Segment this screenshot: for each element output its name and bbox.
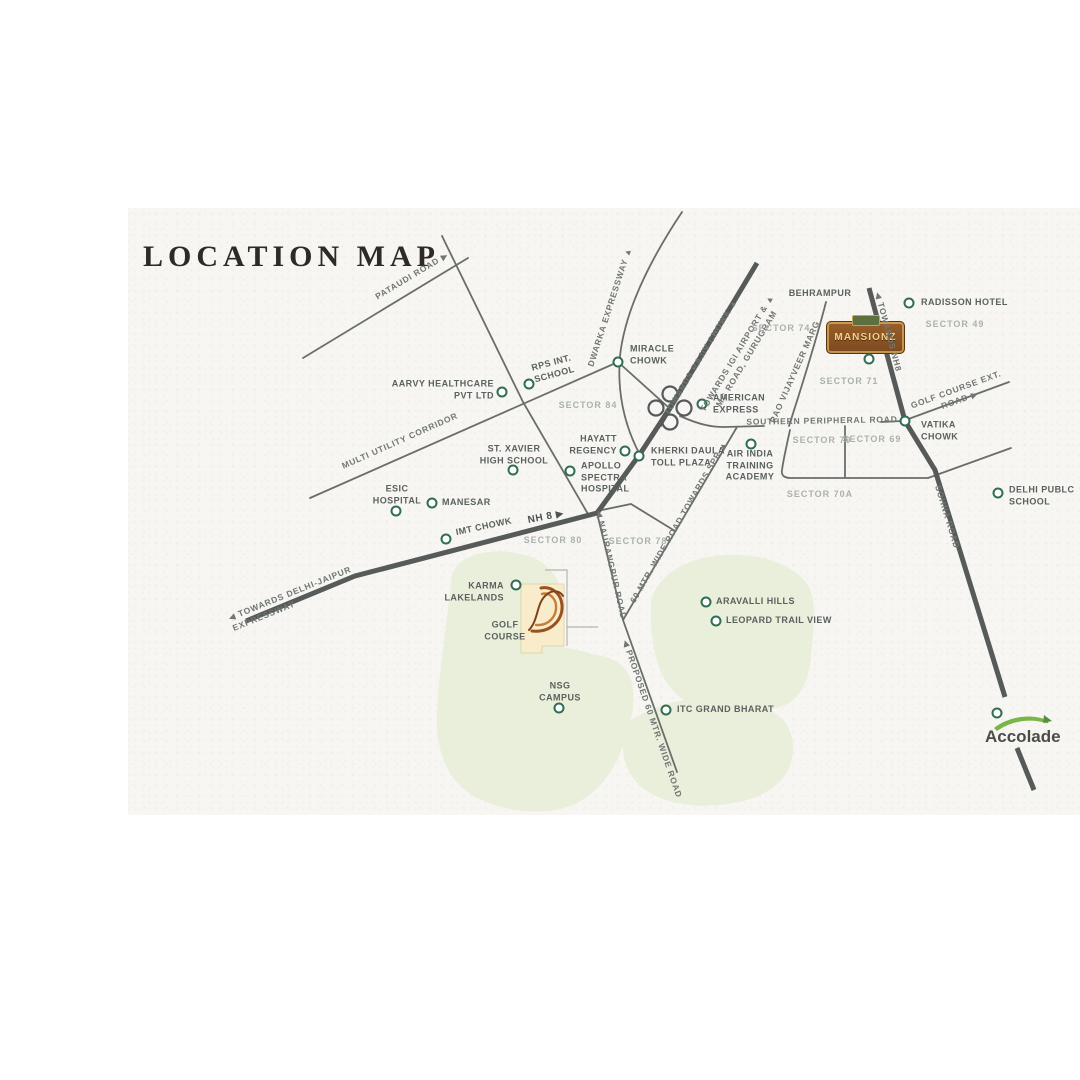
- delhi-public-school-label: DELHI PUBLC SCHOOL: [1009, 484, 1074, 507]
- page-title: LOCATION MAP: [143, 240, 440, 274]
- accolade-site-marker: [992, 708, 1003, 719]
- sector-71-label: SECTOR 71: [820, 376, 879, 388]
- sector-70a-label: SECTOR 70A: [787, 489, 853, 501]
- apollo-spectra-hospital-marker: [565, 466, 576, 477]
- sector-78-label: SECTOR 78: [609, 536, 668, 548]
- multi-utility-corridor-label: MULTI UTILITY CORRIDOR: [340, 410, 460, 471]
- behrampur-label: BEHRAMPUR: [789, 288, 852, 300]
- esic-hospital-marker: [391, 506, 402, 517]
- manesar-label: MANESAR: [442, 497, 491, 509]
- accolade-logo-text: Accolade: [985, 727, 1061, 747]
- towards-delhi-jaipur-expressway-label: ◀ TOWARDS DELHI-JAIPUR EXPRESSWAY: [227, 564, 357, 634]
- sector-80-label: SECTOR 80: [524, 535, 583, 547]
- imt-chowk-marker: [441, 534, 452, 545]
- leopard-trail-view-label: LEOPARD TRAIL VIEW: [726, 615, 832, 627]
- dwarka-expressway-label: DWARKA EXPRESSWAY ▲: [585, 246, 634, 368]
- vatika-chowk-label: VATIKA CHOWK: [921, 419, 958, 442]
- karma-lakelands-marker: [511, 580, 522, 591]
- leopard-trail-view-marker: [711, 616, 722, 627]
- aravalli-hills-marker: [701, 597, 712, 608]
- st-xavier-high-school-label: ST. XAVIER HIGH SCHOOL: [480, 443, 548, 466]
- esic-hospital-label: ESIC HOSPITAL: [373, 483, 421, 506]
- mansionz-site-marker: [864, 354, 875, 365]
- aarvy-healthcare-label: AARVY HEALTHCARE PVT LTD: [392, 378, 494, 401]
- golf-course-ext-road-label: GOLF COURSE EXT. ROAD ▶: [897, 364, 1019, 426]
- miracle-chowk-label: MIRACLE CHOWK: [630, 343, 674, 366]
- radisson-hotel-marker: [904, 298, 915, 309]
- itc-grand-bharat-label: ITC GRAND BHARAT: [677, 704, 774, 716]
- sector-84-label: SECTOR 84: [559, 400, 618, 412]
- hayatt-regency-label: HAYATT REGENCY: [569, 433, 617, 456]
- golf-course-label: GOLF COURSE: [484, 619, 525, 642]
- aravalli-hills-label: ARAVALLI HILLS: [716, 596, 795, 608]
- manesar-marker: [427, 498, 438, 509]
- imt-chowk-label: IMT CHOWK: [455, 515, 513, 538]
- sector-74-label: SECTOR 74: [752, 323, 811, 335]
- proposed-60mtr-road-label: ◀ PROPOSED 60 MTR. WIDE ROAD: [620, 639, 685, 800]
- delhi-public-school-marker: [993, 488, 1004, 499]
- nsg-campus-marker: [554, 703, 565, 714]
- nsg-campus-label: NSG CAMPUS: [539, 680, 581, 703]
- sector-69-label: SECTOR 69: [843, 434, 902, 446]
- karma-lakelands-label: KARMA LAKELANDS: [444, 580, 504, 603]
- air-india-training-academy-label: AIR INDIA TRAINING ACADEMY: [726, 448, 775, 483]
- radisson-hotel-label: RADISSON HOTEL: [921, 297, 1008, 309]
- nh8-label: NH 8 ▶: [527, 507, 566, 527]
- itc-grand-bharat-marker: [661, 705, 672, 716]
- rao-vijayveer-marg-label: RAO VIJAYVEER MARG: [767, 319, 822, 425]
- rps-int-school-label: RPS INT. SCHOOL: [530, 352, 576, 385]
- sector-49-label: SECTOR 49: [926, 319, 985, 331]
- label-layer: LOCATION MAP MANSIONZ Accolade AARVY HEA…: [0, 0, 1080, 1080]
- aarvy-healthcare-marker: [497, 387, 508, 398]
- kherki-daula-toll-plaza-marker: [634, 451, 645, 462]
- rps-int-school-marker: [524, 379, 535, 390]
- apollo-spectra-hospital-label: APOLLO SPECTRA HOSPITAL: [581, 460, 629, 495]
- mansionz-sign-top-tab: [852, 315, 880, 326]
- hayatt-regency-marker: [620, 446, 631, 457]
- location-map-page: LOCATION MAP MANSIONZ Accolade AARVY HEA…: [0, 0, 1080, 1080]
- naurangpur-road-label: ◀ NAURANGPUR ROAD: [593, 510, 629, 621]
- miracle-chowk-marker: [613, 357, 624, 368]
- sohna-road-label: SOHNA ROAD: [932, 484, 962, 550]
